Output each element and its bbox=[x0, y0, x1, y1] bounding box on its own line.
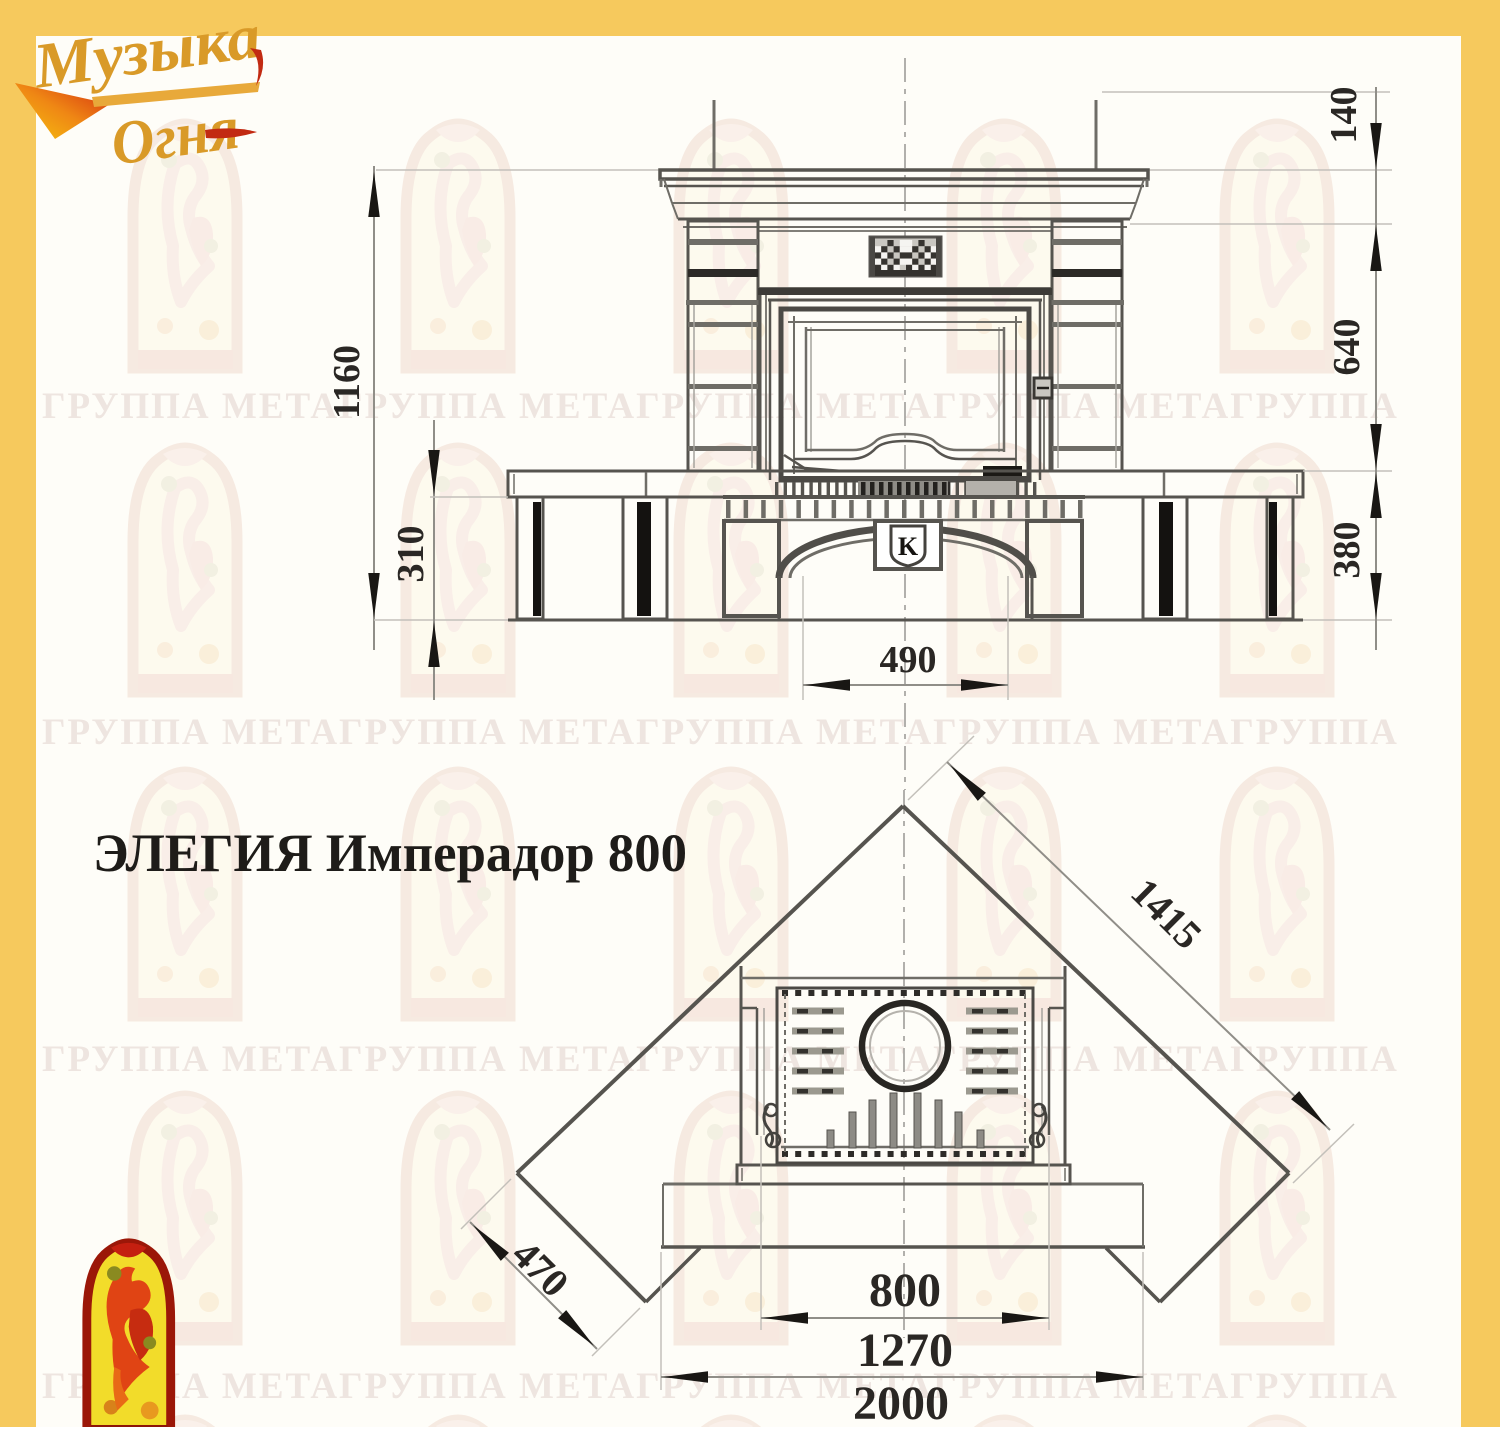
svg-text:ГРУППА МЕТАГРУППА МЕТАГРУППА М: ГРУППА МЕТАГРУППА МЕТАГРУППА МЕТАГРУППА … bbox=[42, 386, 1399, 427]
svg-text:640: 640 bbox=[1326, 319, 1368, 376]
svg-text:1160: 1160 bbox=[326, 345, 368, 419]
svg-text:310: 310 bbox=[390, 526, 432, 583]
svg-text:1270: 1270 bbox=[857, 1324, 953, 1377]
svg-text:K: K bbox=[898, 532, 919, 561]
svg-text:140: 140 bbox=[1323, 87, 1365, 144]
svg-text:490: 490 bbox=[880, 639, 937, 681]
svg-text:ЭЛЕГИЯ Имперадор 800: ЭЛЕГИЯ Имперадор 800 bbox=[93, 823, 687, 883]
svg-text:380: 380 bbox=[1326, 522, 1368, 579]
svg-text:ГРУППА МЕТАГРУППА МЕТАГРУППА М: ГРУППА МЕТАГРУППА МЕТАГРУППА МЕТАГРУППА … bbox=[42, 1039, 1399, 1080]
svg-text:2000: 2000 bbox=[853, 1377, 949, 1427]
svg-text:ГРУППА МЕТАГРУППА МЕТАГРУППА М: ГРУППА МЕТАГРУППА МЕТАГРУППА МЕТАГРУППА … bbox=[42, 712, 1399, 753]
svg-text:800: 800 bbox=[869, 1264, 941, 1317]
svg-text:ГРУППА МЕТАГРУППА МЕТАГРУППА М: ГРУППА МЕТАГРУППА МЕТАГРУППА МЕТАГРУППА … bbox=[42, 1366, 1399, 1407]
